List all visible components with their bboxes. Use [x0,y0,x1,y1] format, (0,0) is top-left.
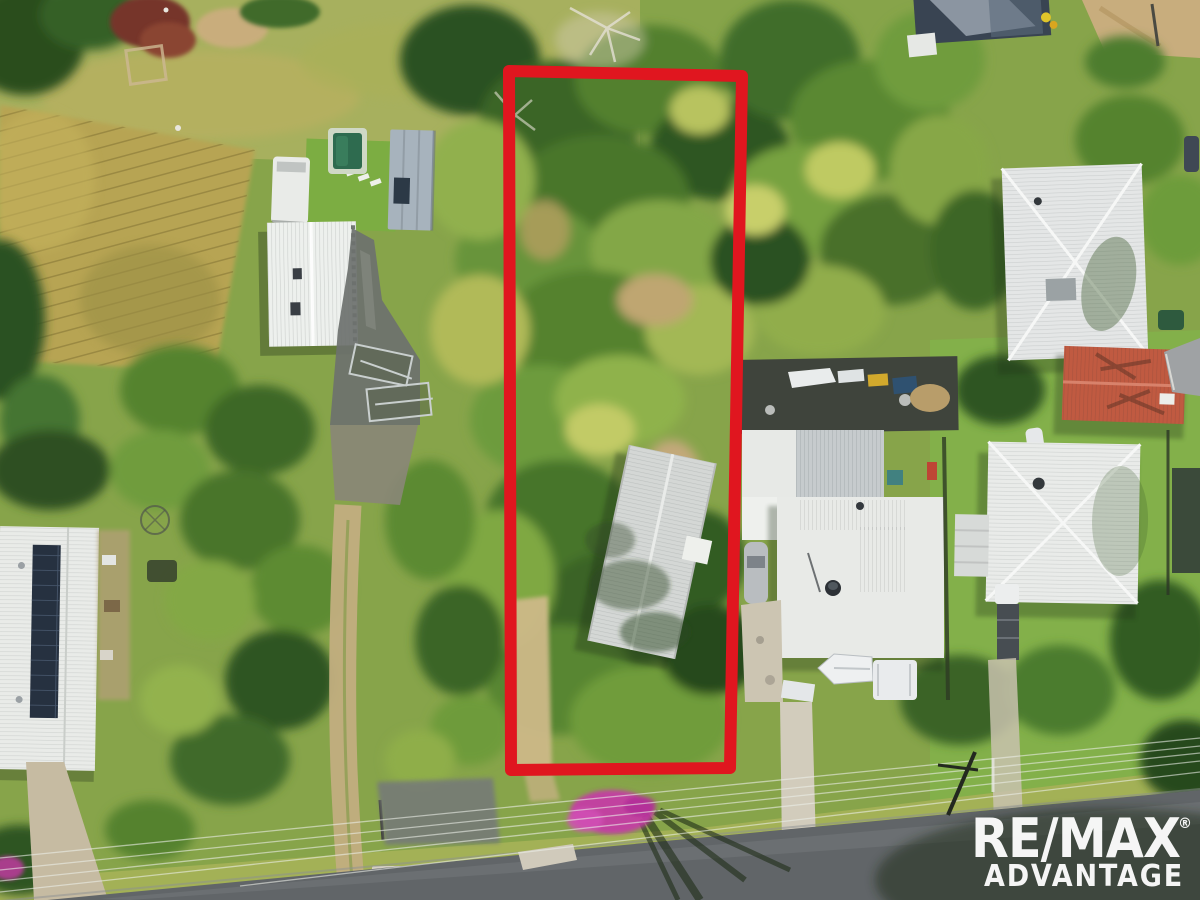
yellow-trailer [868,373,889,386]
trampoline [147,560,177,582]
white-hip-roof-house-bottom [953,441,1149,619]
rooftop-solar-panel [393,178,410,204]
swimming-pool [328,128,367,174]
watermark-subbrand-text: ADVANTAGE [984,859,1184,894]
small-white-shed [907,33,937,58]
aerial-photo: RE/MAX ® ADVANTAGE [0,0,1200,900]
white-hip-roof-house-mid [991,164,1150,375]
dark-green-shed [1172,468,1200,573]
watermark: RE/MAX ® ADVANTAGE [971,807,1192,894]
skylight [290,302,300,315]
parked-car [744,542,768,604]
neighbor-driveway [741,600,783,702]
neighbor-house-roof [768,497,944,671]
subject-driveway [513,596,552,772]
carport-roof [742,430,798,497]
watermark-registered-icon: ® [1178,816,1192,832]
caravan [271,156,310,223]
green-car [1158,310,1184,330]
gray-roof-house [388,129,435,230]
solar-house [0,526,99,782]
skylight [293,268,302,279]
truck-rv [995,584,1019,660]
dark-car [1184,136,1199,172]
old-asphalt-patch [377,778,500,845]
